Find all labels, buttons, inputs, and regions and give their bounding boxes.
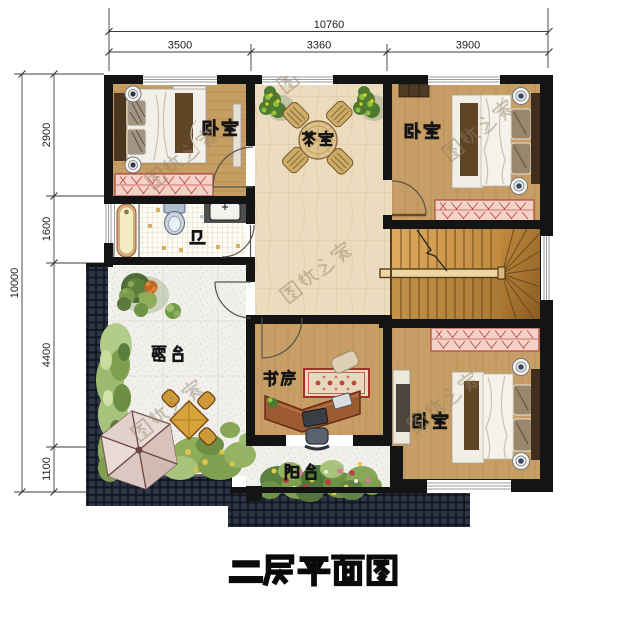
svg-text:10000: 10000 [9,268,21,299]
svg-text:3900: 3900 [456,40,480,52]
svg-text:2900: 2900 [41,123,53,147]
svg-text:3500: 3500 [168,40,192,52]
svg-text:1600: 1600 [41,217,53,241]
svg-text:4400: 4400 [41,343,53,367]
svg-text:10760: 10760 [314,19,345,31]
svg-text:1100: 1100 [41,457,53,481]
svg-text:3360: 3360 [307,40,331,52]
